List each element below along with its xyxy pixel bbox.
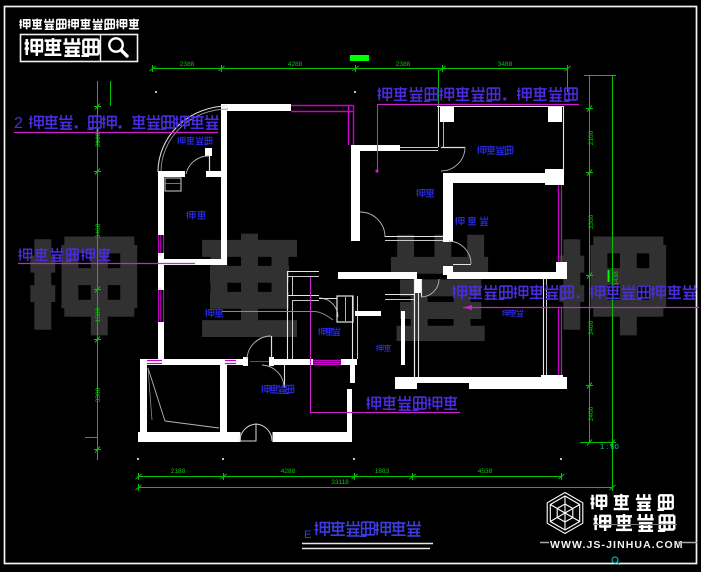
svg-text:2388: 2388: [180, 61, 195, 68]
svg-text:3400: 3400: [588, 320, 595, 335]
svg-text:3468: 3468: [95, 223, 102, 238]
svg-text:3488: 3488: [498, 61, 513, 68]
svg-text:2: 2: [14, 115, 23, 132]
svg-text:33118: 33118: [331, 479, 349, 486]
svg-text:1500: 1500: [95, 307, 102, 322]
svg-text:2400: 2400: [588, 406, 595, 421]
svg-text:WWW.JS-JINHUA.COM: WWW.JS-JINHUA.COM: [550, 539, 684, 551]
svg-text:4288: 4288: [281, 468, 296, 475]
svg-text:3300: 3300: [95, 387, 102, 402]
svg-text:1883: 1883: [375, 468, 390, 475]
svg-text:2100: 2100: [588, 130, 595, 145]
svg-text:E: E: [304, 529, 311, 541]
svg-text:3300: 3300: [588, 214, 595, 229]
svg-text:4288: 4288: [288, 61, 303, 68]
svg-text:2388: 2388: [396, 61, 411, 68]
svg-text:2188: 2188: [171, 468, 186, 475]
svg-text:1 : 60: 1 : 60: [600, 442, 619, 451]
svg-text:2100: 2100: [95, 132, 102, 147]
svg-text:4538: 4538: [478, 468, 493, 475]
